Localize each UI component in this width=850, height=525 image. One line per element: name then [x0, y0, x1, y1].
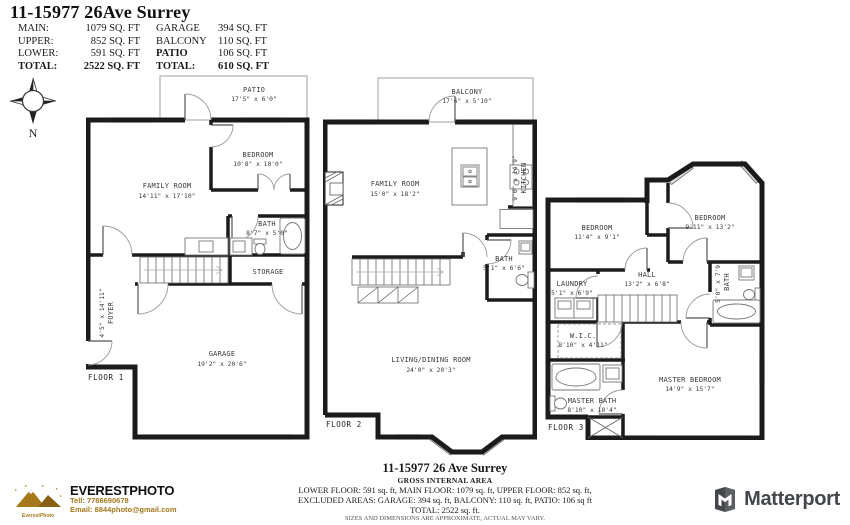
matterport-logo-block: Matterport [712, 486, 840, 513]
floor-2-label: FLOOR 2 [326, 420, 362, 429]
room-label-master-bedroom: MASTER BEDROOM [659, 376, 721, 384]
footer-address: 11-15977 26 Ave Surrey [195, 461, 695, 476]
area-value: 394 SQ. FT [218, 23, 288, 36]
room-label-patio: PATIO [243, 86, 265, 94]
room-label-garage: GARAGE [209, 350, 236, 358]
room-dims-family-room: 14'11" x 17'10" [139, 193, 196, 200]
laundry-fixtures [555, 298, 593, 318]
footer-areas-line-2: EXCLUDED AREAS: GARAGE: 394 sq. ft, BALC… [195, 495, 695, 505]
svg-text:5'0" x 7'9": 5'0" x 7'9" [715, 261, 722, 303]
area-row: LOWER:591 SQ. FTPATIO106 SQ. FT [10, 48, 288, 61]
room-label-hall: HALL [638, 271, 656, 279]
room-label-bath: BATH [258, 220, 276, 228]
room-label-bath: BATH 5'0" x 7'9" [715, 261, 731, 303]
area-label: BALCONY [156, 36, 218, 49]
compass-rose-icon: N [8, 76, 58, 140]
staircase [352, 259, 450, 303]
staircase [140, 257, 228, 283]
svg-text:KITCHEN: KITCHEN [520, 163, 528, 194]
area-row: MAIN:1079 SQ. FTGARAGE394 SQ. FT [10, 23, 288, 36]
windows [327, 120, 521, 455]
kitchen-counter-icon [500, 210, 533, 229]
everestphoto-logo: EverestPhoto [12, 484, 64, 519]
svg-text:FOYER: FOYER [107, 301, 115, 324]
area-value: 110 SQ. FT [218, 36, 288, 49]
floor-3-plan: BEDROOM 11'4" x 9'1" BEDROOM 9'11" x 13'… [543, 140, 765, 440]
floor-3-label: FLOOR 3 [548, 423, 584, 432]
footer-disclaimer: SIZES AND DIMENSIONS ARE APPROXIMATE, AC… [195, 515, 695, 522]
vendor-logo-block: EverestPhoto EVERESTPHOTO Tell: 77866906… [12, 484, 177, 519]
room-dims-family-room: 15'0" x 18'2" [370, 191, 419, 198]
room-label-laundry: LAUNDRY [557, 280, 588, 288]
area-label: PATIO [156, 48, 218, 61]
room-dims-wic: 8'10" x 4'11" [558, 342, 607, 349]
room-dims-living-dining: 24'0" x 20'3" [406, 367, 455, 374]
compass-north-label: N [29, 126, 38, 140]
footer-total: TOTAL: 2522 sq. ft. [195, 505, 695, 515]
room-label-family-room: FAMILY ROOM [371, 180, 420, 188]
matterport-wordmark: Matterport [744, 488, 840, 511]
fireplace-icon [325, 172, 343, 205]
floorplan-sheet: { "header": { "title": "11-15977 26Ave S… [0, 0, 850, 525]
kitchen-island-icon [452, 148, 487, 205]
room-dims-bath: 8'7" x 5'0" [246, 230, 288, 237]
room-label-bedroom-1: BEDROOM [582, 224, 613, 232]
area-label: GARAGE [156, 23, 218, 36]
mountain-icon [12, 484, 64, 510]
area-value: 852 SQ. FT [74, 36, 140, 49]
room-label-storage: STORAGE [253, 268, 284, 276]
toilet-icon [528, 272, 534, 288]
area-label: LOWER: [10, 48, 74, 61]
area-label: MAIN: [10, 23, 74, 36]
room-label-living-dining: LIVING/DINING ROOM [391, 356, 470, 364]
room-dims-hall: 13'2" x 6'8" [624, 281, 670, 288]
area-value: 106 SQ. FT [218, 48, 288, 61]
staircase [598, 295, 677, 322]
floor-2-plan: BALCONY 17'6" x 5'10" FAMILY ROOM 15'0" … [323, 70, 537, 460]
stairwell-x [588, 417, 623, 438]
room-label-balcony: BALCONY [452, 88, 483, 96]
room-label-bath: BATH [495, 255, 513, 263]
wic-outline [558, 324, 621, 358]
footer-summary: 11-15977 26 Ave Surrey GROSS INTERNAL AR… [195, 461, 695, 522]
room-label-foyer: FOYER 4'5" x 14'11" [99, 288, 115, 337]
room-dims-bedroom-1: 11'4" x 9'1" [574, 234, 620, 241]
room-label-wic: W.I.C. [570, 332, 597, 340]
floor-1-plan: PATIO 17'5" x 6'0" FAMILY ROOM 14'11" x … [86, 68, 314, 440]
svg-text:BATH: BATH [723, 273, 731, 291]
room-label-master-bath: MASTER BATH [568, 397, 617, 405]
room-dims-bath: 5'1" x 6'6" [483, 265, 525, 272]
vendor-email: Email: 8844photo@gmail.com [70, 506, 177, 515]
room-dims-bedroom: 10'8" x 10'0" [233, 161, 282, 168]
footer-subtitle: GROSS INTERNAL AREA [195, 476, 695, 485]
matterport-icon [712, 486, 738, 513]
header: 11-15977 26Ave Surrey MAIN:1079 SQ. FTGA… [10, 2, 288, 73]
room-dims-balcony: 17'6" x 5'10" [442, 98, 491, 105]
area-value: 1079 SQ. FT [74, 23, 140, 36]
svg-text:9'0" x 14'9": 9'0" x 14'9" [512, 155, 519, 201]
footer-areas-line-1: LOWER FLOOR: 591 sq. ft, MAIN FLOOR: 107… [195, 485, 695, 495]
room-dims-patio: 17'5" x 6'0" [231, 96, 277, 103]
room-dims-master-bath: 8'10" x 10'4" [567, 407, 616, 414]
area-row: UPPER:852 SQ. FTBALCONY110 SQ. FT [10, 36, 288, 49]
floor-1-label: FLOOR 1 [88, 373, 124, 382]
walls [325, 122, 535, 452]
room-dims-garage: 19'2" x 20'6" [197, 361, 246, 368]
room-label-bedroom: BEDROOM [243, 151, 274, 159]
room-dims-bedroom-2: 9'11" x 13'2" [685, 224, 734, 231]
room-dims-master-bedroom: 14'9" x 15'7" [665, 386, 714, 393]
room-dims-laundry: 5'1" x 6'9" [551, 290, 593, 297]
area-value: 591 SQ. FT [74, 48, 140, 61]
page-title: 11-15977 26Ave Surrey [10, 2, 288, 23]
toilet-icon [755, 288, 760, 301]
room-label-family-room: FAMILY ROOM [143, 182, 192, 190]
area-label: UPPER: [10, 36, 74, 49]
room-labels: PATIO 17'5" x 6'0" FAMILY ROOM 14'11" x … [88, 86, 288, 382]
area-label: TOTAL: [10, 61, 74, 74]
room-label-bedroom-2: BEDROOM [695, 214, 726, 222]
svg-text:4'5" x 14'11": 4'5" x 14'11" [99, 288, 106, 337]
everestphoto-logo-text: EverestPhoto [12, 513, 64, 519]
